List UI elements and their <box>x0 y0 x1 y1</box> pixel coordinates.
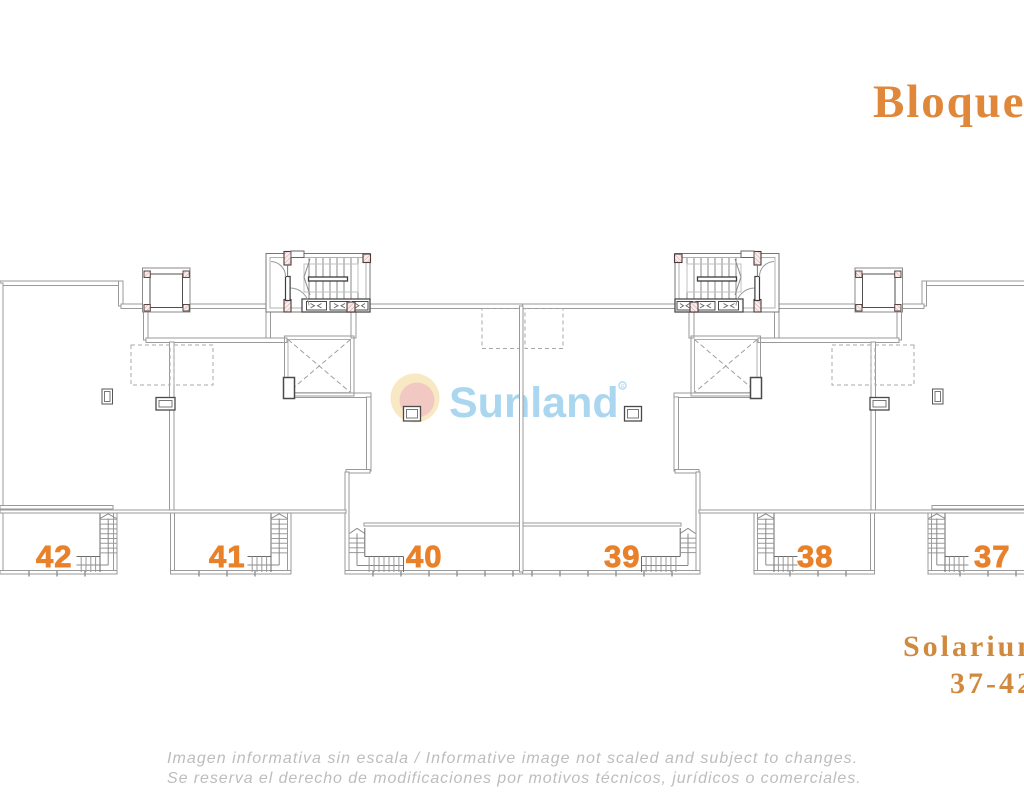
svg-text:R: R <box>621 384 625 390</box>
svg-text:40: 40 <box>406 539 442 574</box>
svg-text:Sunland: Sunland <box>449 379 619 427</box>
svg-text:Solariums: Solariums <box>903 630 1024 663</box>
svg-text:39: 39 <box>604 539 640 574</box>
svg-text:Bloque 7: Bloque 7 <box>873 76 1024 128</box>
svg-text:37-42: 37-42 <box>950 667 1024 700</box>
svg-text:41: 41 <box>209 539 245 574</box>
svg-text:Imagen informativa sin escala: Imagen informativa sin escala / Informat… <box>167 750 858 767</box>
svg-text:38: 38 <box>797 539 833 574</box>
svg-text:Se reserva el derecho de modif: Se reserva el derecho de modificaciones … <box>167 770 862 787</box>
svg-text:42: 42 <box>36 539 72 574</box>
svg-text:37: 37 <box>974 539 1010 574</box>
